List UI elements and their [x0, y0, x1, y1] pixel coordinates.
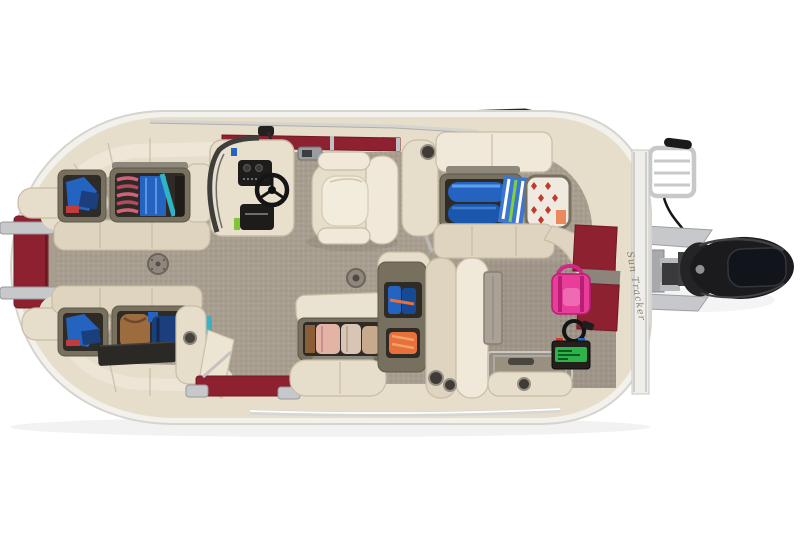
bench-base — [290, 360, 386, 396]
floor-table-mount — [148, 254, 168, 274]
latch — [421, 145, 435, 159]
floor-table-mount-2 — [347, 269, 365, 287]
helm-console — [210, 126, 294, 236]
aft-l-couch — [426, 258, 488, 398]
gauge-panel — [238, 160, 272, 186]
battery — [552, 338, 590, 369]
console-bin-orange — [386, 328, 420, 358]
chair-seat-cushion — [322, 176, 368, 226]
product-photo-pontoon-overhead: Sun Tracker — [0, 0, 800, 533]
latch — [444, 379, 456, 391]
latch — [429, 371, 443, 385]
throttle-lever — [258, 126, 274, 136]
bench-storage-bin — [298, 318, 386, 360]
console-bin-blue — [384, 282, 422, 318]
captains-chair — [306, 152, 398, 251]
aft-lounge-seat — [434, 224, 554, 258]
latch — [518, 378, 530, 390]
stereo-panel — [240, 204, 274, 230]
bow-lounge-seat-front — [54, 220, 210, 250]
pink-tote — [316, 324, 340, 354]
patterned-fabric-bin — [526, 176, 570, 228]
latch — [184, 332, 196, 344]
boat-illustration: Sun Tracker — [0, 0, 800, 533]
chair-armrest-top — [318, 152, 370, 170]
bow-storage-bin-left — [58, 170, 106, 222]
bow-storage-bin-right — [110, 162, 190, 222]
aft-console — [378, 252, 430, 372]
aft-bench — [290, 292, 386, 396]
chair-armrest-bottom — [318, 228, 370, 244]
chair-backrest — [366, 156, 398, 244]
couch-back-column — [456, 258, 488, 398]
